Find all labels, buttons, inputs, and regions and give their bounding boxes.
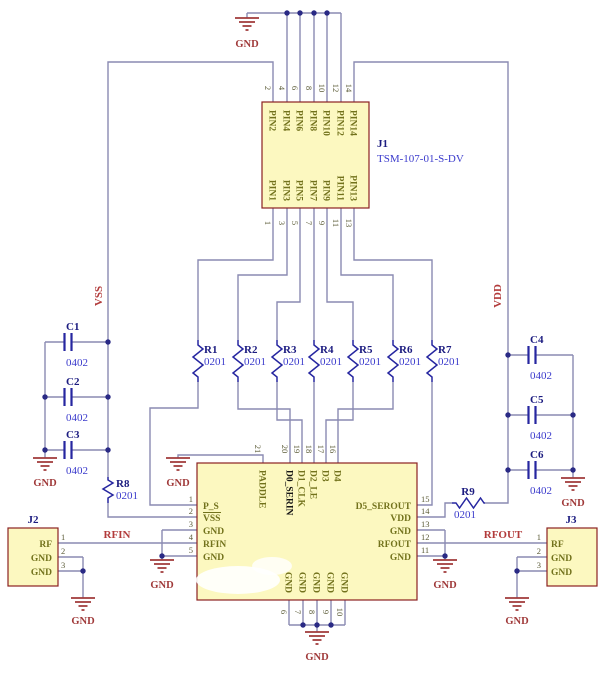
c2-value: 0402: [66, 412, 88, 424]
gnd-label: GND: [33, 478, 57, 489]
pin-number: 1: [189, 494, 193, 504]
resistor-r2-symbol: [233, 340, 243, 382]
gnd-symbol: [166, 458, 190, 470]
wire-j1-fanout: [198, 208, 432, 340]
capacitor-c5-symbol: [529, 406, 536, 424]
capacitor-c4-symbol: [529, 346, 536, 364]
r2-designator: R2: [244, 344, 258, 356]
r6-value: 0201: [399, 356, 421, 368]
resistor-r7-symbol: [427, 340, 437, 382]
pin-name: D3: [320, 470, 330, 482]
j1-part-number: TSM-107-01-S-DV: [377, 153, 464, 165]
pin-name: PIN1: [267, 180, 277, 201]
gnd-symbol: [235, 18, 259, 30]
pin-number: 19: [292, 445, 302, 454]
r3-designator: R3: [283, 344, 297, 356]
pin-number: 8: [307, 610, 317, 614]
pin-name: GND: [283, 572, 293, 593]
resistor-r1-symbol: [193, 340, 203, 382]
wire-net-vss: [108, 62, 273, 517]
c5-value: 0402: [530, 430, 552, 442]
pin-number: 5: [290, 221, 300, 225]
pin-name: GND: [31, 568, 52, 578]
gnd-symbol: [561, 478, 585, 490]
c5-designator: C5: [530, 394, 544, 406]
pin-name: GND: [203, 553, 224, 563]
r7-value: 0201: [438, 356, 460, 368]
junction-dot: [159, 553, 164, 558]
pin-name: GND: [203, 527, 224, 537]
r5-value: 0201: [359, 356, 381, 368]
junction-dot: [570, 412, 575, 417]
gnd-label: GND: [235, 39, 259, 50]
pin-name: GND: [551, 568, 572, 578]
pin-name: GND: [31, 554, 52, 564]
junction-dot: [105, 447, 110, 452]
r2-value: 0201: [244, 356, 266, 368]
pin-name: PIN10: [321, 110, 331, 136]
r4-designator: R4: [320, 344, 334, 356]
c3-value: 0402: [66, 465, 88, 477]
pin-name: PIN4: [281, 110, 291, 131]
gnd-symbol: [505, 598, 529, 610]
c4-designator: C4: [530, 334, 544, 346]
junction-dot: [42, 447, 47, 452]
resistor-r3-symbol: [272, 340, 282, 382]
pin-number: 14: [344, 84, 354, 93]
resistor-r9-symbol: [452, 498, 485, 508]
pin-name: GND: [297, 572, 307, 593]
pin-name: PIN6: [294, 110, 304, 131]
c3-designator: C3: [66, 429, 80, 441]
junction-dot: [505, 352, 510, 357]
r8-designator: R8: [116, 478, 130, 490]
pin-name: VSS: [203, 514, 220, 524]
gnd-symbol: [71, 598, 95, 610]
r1-value: 0201: [204, 356, 226, 368]
r9-designator: R9: [461, 486, 475, 498]
gnd-symbol: [33, 458, 57, 470]
pin-name: P_S: [203, 502, 219, 512]
net-label-vss: VSS: [93, 286, 105, 306]
gnd-label: GND: [71, 616, 95, 627]
junction-dot: [324, 10, 329, 15]
pin-name: PADDLE: [257, 470, 267, 508]
pin-name: PIN5: [294, 180, 304, 201]
gnd-label: GND: [561, 498, 585, 509]
pin-name: D4: [332, 470, 342, 482]
capacitor-symbols: [65, 333, 536, 479]
gnd-label: GND: [433, 580, 457, 591]
j2-designator: J2: [28, 514, 40, 526]
pin-number: 4: [277, 86, 287, 91]
pin-name: PIN11: [335, 176, 345, 202]
pin-name: GND: [339, 572, 349, 593]
r6-designator: R6: [399, 344, 413, 356]
pin-name: RF: [551, 540, 564, 550]
pin-number: 14: [421, 506, 430, 516]
junction-dot: [505, 412, 510, 417]
pin-number: 5: [189, 545, 193, 555]
pin-number: 7: [293, 610, 303, 614]
c6-designator: C6: [530, 449, 544, 461]
pin-number: 2: [263, 86, 273, 90]
resistor-r6-symbol: [388, 340, 398, 382]
pin-name: RFOUT: [378, 540, 412, 550]
junction-dot: [80, 568, 85, 573]
r9-value: 0201: [454, 509, 476, 521]
pin-number: 9: [321, 610, 331, 614]
j3-designator: J3: [566, 514, 578, 526]
pin-number: 7: [304, 221, 314, 225]
pin-number: 11: [331, 219, 341, 227]
pin-number: 11: [421, 545, 429, 555]
pin-name: PIN2: [267, 110, 277, 131]
pin-name: PIN13: [348, 175, 358, 201]
junction-dot: [284, 10, 289, 15]
gnd-label: GND: [150, 580, 174, 591]
pin-name: GND: [390, 553, 411, 563]
junction-dot: [314, 622, 319, 627]
pin-number: 2: [61, 546, 65, 556]
pin-number: 3: [61, 560, 65, 570]
gnd-label: GND: [305, 652, 329, 663]
c2-designator: C2: [66, 376, 80, 388]
resistor-r4-symbol: [309, 340, 319, 382]
pin-number: 12: [421, 532, 430, 542]
r7-designator: R7: [438, 344, 452, 356]
resistor-r8-symbol: [103, 477, 113, 503]
schematic-page: J1 TSM-107-01-S-DV PIN2 PIN4 PIN6 PIN8 P…: [0, 0, 606, 680]
pin-number: 18: [304, 445, 314, 454]
pin-name: RF: [39, 540, 52, 550]
gnd-label: GND: [505, 616, 529, 627]
pin-name: VDD: [390, 514, 411, 524]
junction-dot: [328, 622, 333, 627]
pin-number: 17: [316, 445, 326, 454]
junction-dot: [505, 467, 510, 472]
pin-name: RFIN: [203, 540, 226, 550]
capacitor-c2-symbol: [65, 388, 72, 406]
pin-number: 9: [317, 221, 327, 225]
pin-number: 10: [317, 84, 327, 93]
pin-number: 13: [421, 519, 430, 529]
c1-designator: C1: [66, 321, 79, 333]
c1-value: 0402: [66, 357, 88, 369]
schematic-canvas: J1 TSM-107-01-S-DV PIN2 PIN4 PIN6 PIN8 P…: [0, 0, 606, 680]
pin-name: PIN3: [281, 180, 291, 201]
gnd-label: GND: [166, 478, 190, 489]
pin-number: 15: [421, 494, 430, 504]
junction-dot: [105, 394, 110, 399]
pin-number: 16: [328, 445, 338, 454]
capacitor-c6-symbol: [529, 461, 536, 479]
pin-name: PIN14: [348, 110, 358, 136]
net-label-rfin: RFIN: [104, 529, 131, 541]
pin-number: 13: [344, 219, 354, 228]
r4-value: 0201: [320, 356, 342, 368]
gnd-symbol: [150, 560, 174, 572]
pin-name: GND: [325, 572, 335, 593]
pin-name: GND: [551, 554, 572, 564]
junction-dot: [514, 568, 519, 573]
net-label-vdd: VDD: [492, 284, 504, 308]
capacitor-c1-symbol: [65, 333, 72, 351]
pin-name: PIN12: [335, 110, 345, 136]
pin-number: 6: [290, 86, 300, 90]
c4-value: 0402: [530, 370, 552, 382]
junction-dot: [311, 10, 316, 15]
c6-value: 0402: [530, 485, 552, 497]
pin-name: PIN7: [308, 180, 318, 201]
pin-name: GND: [311, 572, 321, 593]
pin-name: D1_CLK: [296, 470, 306, 508]
pin-number: 4: [189, 532, 194, 542]
pin-number: 20: [280, 445, 290, 454]
pin-name: D0_SERIN: [284, 470, 294, 516]
resistor-r5-symbol: [348, 340, 358, 382]
pin-number: 3: [189, 519, 193, 529]
pin-name: GND: [390, 527, 411, 537]
wire-net-vdd: [354, 62, 508, 517]
junction-dot: [442, 553, 447, 558]
junction-dot: [570, 467, 575, 472]
r1-designator: R1: [204, 344, 217, 356]
gnd-symbol: [305, 632, 329, 644]
gnd-symbol: [433, 560, 457, 572]
r3-value: 0201: [283, 356, 305, 368]
junction-dot: [105, 339, 110, 344]
net-label-rfout: RFOUT: [484, 529, 523, 541]
r5-designator: R5: [359, 344, 373, 356]
pin-number: 10: [335, 608, 345, 617]
pin-name: D2_LE: [308, 470, 318, 499]
pin-number: 1: [263, 221, 273, 225]
pin-number: 2: [189, 506, 193, 516]
pin-number: 3: [537, 560, 541, 570]
pin-number: 12: [331, 84, 341, 93]
pin-number: 8: [304, 86, 314, 90]
pin-name: PIN8: [308, 110, 318, 131]
pin-number: 2: [537, 546, 541, 556]
r8-value: 0201: [116, 490, 138, 502]
junction-dot: [300, 622, 305, 627]
pin-number: 3: [277, 221, 287, 225]
pin-number: 1: [537, 532, 541, 542]
pin-name: D5_SEROUT: [356, 502, 412, 512]
j1-designator: J1: [377, 138, 388, 150]
wire-paddle-gnd: [178, 455, 263, 463]
junction-dot: [42, 394, 47, 399]
pin-number: 6: [279, 610, 289, 614]
pin-number: 1: [61, 532, 65, 542]
pin-number: 21: [253, 445, 263, 454]
capacitor-c3-symbol: [65, 441, 72, 459]
pin-name: PIN9: [321, 180, 331, 201]
junction-dot: [297, 10, 302, 15]
